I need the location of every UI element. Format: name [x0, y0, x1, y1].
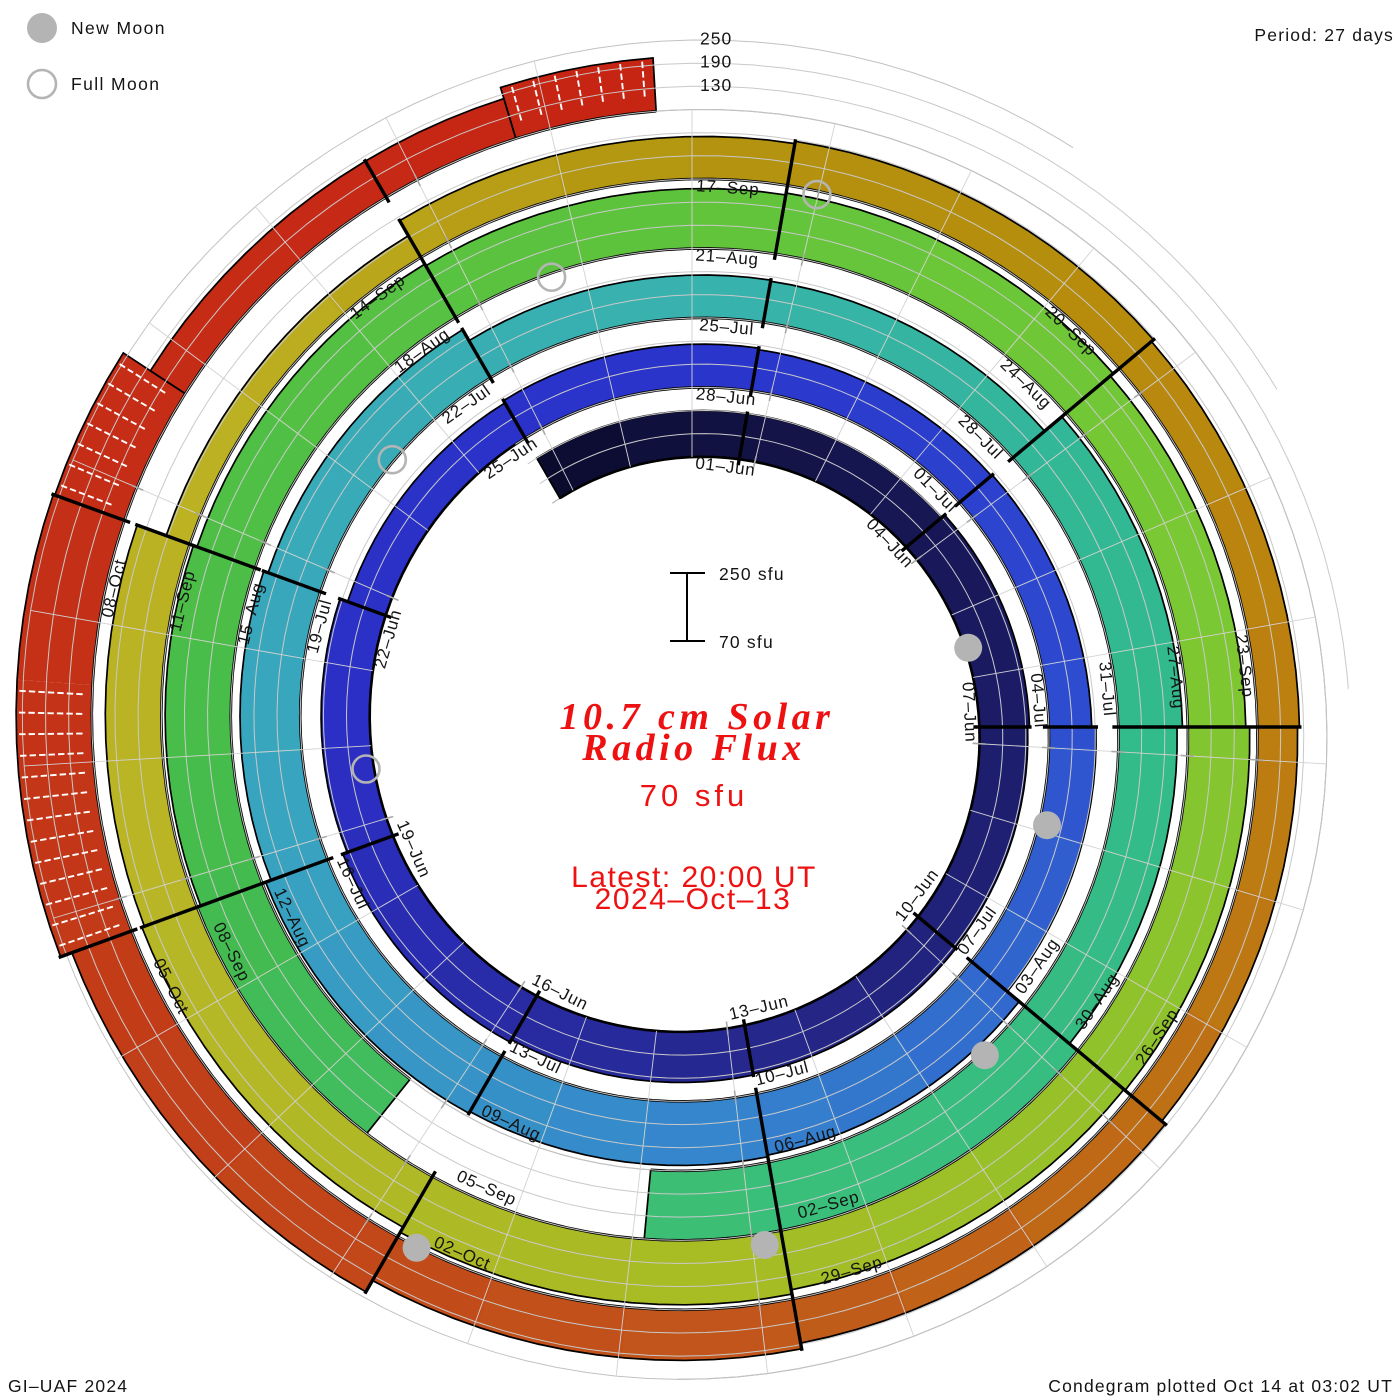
- svg-text:Condegram plotted Oct 14 at 03: Condegram plotted Oct 14 at 03:02 UT: [1048, 1376, 1393, 1396]
- svg-text:Radio Flux: Radio Flux: [581, 727, 805, 769]
- svg-text:190: 190: [700, 52, 732, 72]
- svg-text:70 sfu: 70 sfu: [719, 632, 774, 652]
- svg-text:07–Jun: 07–Jun: [958, 681, 980, 743]
- svg-text:2024–Oct–13: 2024–Oct–13: [595, 883, 792, 916]
- svg-text:New Moon: New Moon: [71, 18, 166, 38]
- svg-text:GI–UAF 2024: GI–UAF 2024: [8, 1376, 128, 1396]
- svg-text:70 sfu: 70 sfu: [640, 778, 748, 813]
- svg-text:Full Moon: Full Moon: [71, 74, 160, 94]
- svg-text:130: 130: [700, 75, 732, 95]
- svg-text:Period: 27 days: Period: 27 days: [1254, 25, 1394, 45]
- svg-text:250: 250: [700, 29, 732, 49]
- svg-text:250 sfu: 250 sfu: [719, 564, 785, 584]
